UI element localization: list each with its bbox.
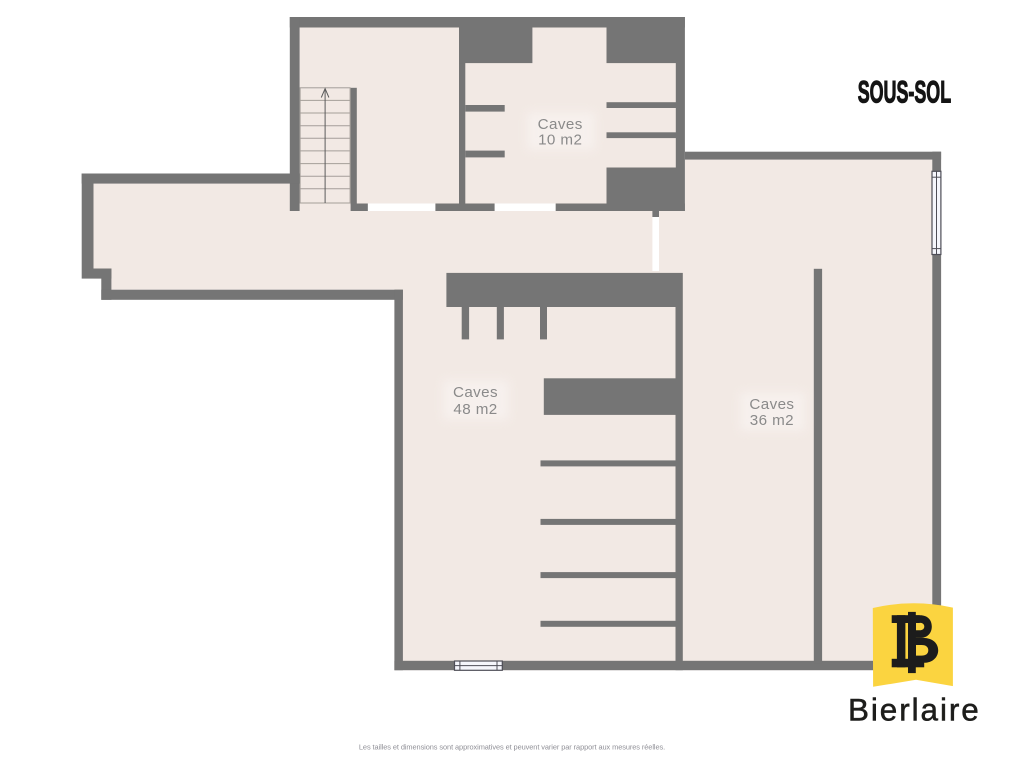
svg-text:Bierlaire: Bierlaire	[848, 693, 981, 728]
svg-text:48 m2: 48 m2	[453, 401, 497, 418]
svg-text:SOUS-SOL: SOUS-SOL	[858, 76, 951, 110]
svg-text:Caves: Caves	[453, 384, 498, 401]
svg-text:Les tailles et dimensions sont: Les tailles et dimensions sont approxima…	[359, 743, 665, 752]
svg-text:Caves: Caves	[749, 396, 794, 413]
svg-text:10 m2: 10 m2	[538, 131, 582, 148]
svg-text:36 m2: 36 m2	[750, 412, 794, 429]
